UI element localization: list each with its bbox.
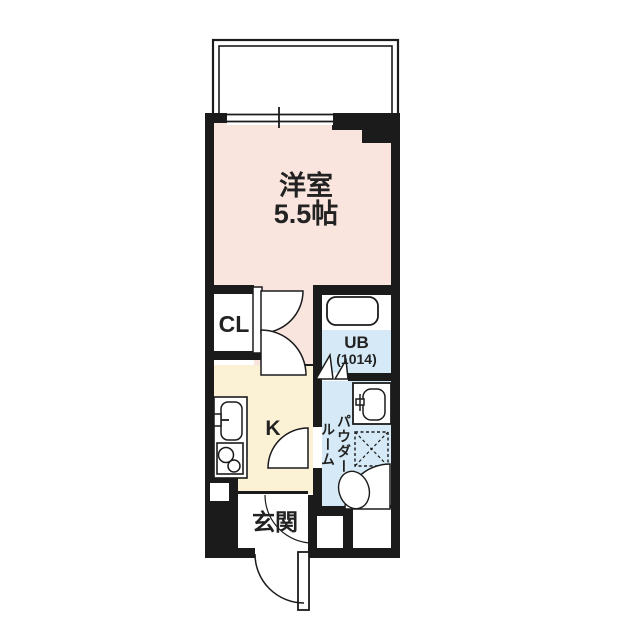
unit-bath-tub-area <box>322 294 391 330</box>
floor-plan: 洋室 5.5帖 CL UB (1014) K パウダールーム 玄関 <box>0 0 640 639</box>
pillar-top-right-upper <box>332 113 400 130</box>
entrance-label: 玄関 <box>243 510 307 534</box>
line-corridor-kitchen <box>261 364 313 366</box>
wall-closet-top <box>214 285 254 294</box>
living-room-label: 洋室 <box>246 172 366 200</box>
compartment-a-area <box>317 516 343 548</box>
wall-closet-bottom <box>214 351 262 360</box>
wall-kitchen-right-upper <box>313 285 322 427</box>
living-room-size: 5.5帖 <box>246 200 366 228</box>
entrance-door-arc <box>255 554 304 603</box>
wall-unit-bath-top <box>313 285 391 295</box>
line-kitchen-entrance <box>238 491 308 494</box>
balcony-outer-rail <box>213 40 398 117</box>
closet-label: CL <box>214 312 254 336</box>
pillar-top-right-lower <box>362 130 400 143</box>
unit-bath-size: (1014) <box>322 352 391 367</box>
wall-powder-bottom <box>313 506 353 516</box>
line-powder-compartment <box>353 505 391 508</box>
wall-entrance-right <box>308 495 317 558</box>
kitchen-label: K <box>258 418 288 440</box>
entrance-door-gap <box>255 548 308 558</box>
meter-box-niche <box>210 483 229 501</box>
wall-compartment-divider <box>343 516 353 558</box>
wall-right <box>391 113 400 558</box>
compartment-b-area <box>353 508 391 548</box>
corridor-area <box>254 285 313 365</box>
powder-room-label: パウダールーム <box>318 410 352 478</box>
entrance-door-leaf <box>298 552 309 610</box>
unit-bath-label: UB <box>322 334 391 352</box>
balcony-inner-rail <box>219 46 392 117</box>
unit-bath-door-gap <box>322 373 348 381</box>
